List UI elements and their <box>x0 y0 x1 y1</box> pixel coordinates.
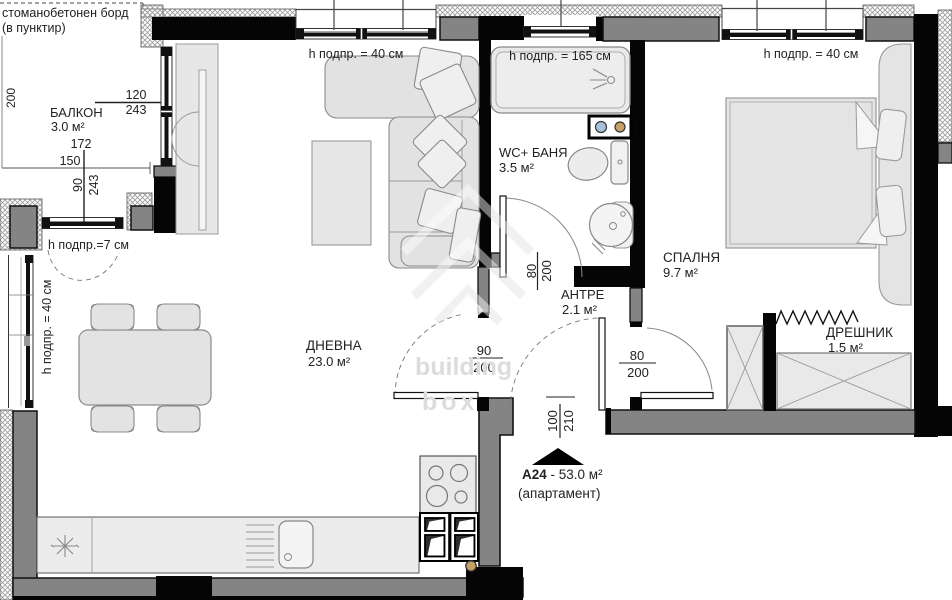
svg-text:1.5 м²: 1.5 м² <box>828 340 864 355</box>
svg-text:(апартамент): (апартамент) <box>518 486 601 501</box>
svg-text:120: 120 <box>126 88 147 102</box>
svg-text:БАЛКОН: БАЛКОН <box>50 105 103 120</box>
svg-text:h подпр.=7 см: h подпр.=7 см <box>48 238 129 252</box>
svg-text:210: 210 <box>561 410 576 432</box>
svg-text:стоманобетонен борд: стоманобетонен борд <box>2 6 129 20</box>
svg-text:243: 243 <box>126 103 147 117</box>
svg-text:2.1 м²: 2.1 м² <box>562 302 598 317</box>
svg-text:ДНЕВНА: ДНЕВНА <box>306 338 362 353</box>
svg-text:23.0 м²: 23.0 м² <box>308 354 351 369</box>
svg-text:80: 80 <box>524 264 539 278</box>
svg-text:172: 172 <box>71 137 92 151</box>
svg-text:h подпр. = 40 см: h подпр. = 40 см <box>764 47 859 61</box>
svg-text:WC+ БАНЯ: WC+ БАНЯ <box>499 145 568 160</box>
svg-text:90: 90 <box>71 178 85 192</box>
svg-text:3.0 м²: 3.0 м² <box>51 120 85 134</box>
svg-text:(в пунктир): (в пунктир) <box>2 21 66 35</box>
svg-text:243: 243 <box>87 175 101 196</box>
svg-text:200: 200 <box>539 260 554 282</box>
svg-text:80: 80 <box>630 348 644 363</box>
svg-text:h подпр. = 40 см: h подпр. = 40 см <box>40 280 54 375</box>
svg-text:h подпр. = 165 см: h подпр. = 165 см <box>509 49 611 63</box>
svg-text:3.5 м²: 3.5 м² <box>499 160 535 175</box>
svg-text:box: box <box>422 388 478 416</box>
svg-text:100: 100 <box>545 410 560 432</box>
svg-text:200: 200 <box>627 365 649 380</box>
svg-text:200: 200 <box>4 88 18 108</box>
svg-text:150: 150 <box>60 154 81 168</box>
svg-text:9.7 м²: 9.7 м² <box>663 265 699 280</box>
svg-text:ДРЕШНИК: ДРЕШНИК <box>826 325 893 340</box>
svg-text:A24 - 53.0 м²: A24 - 53.0 м² <box>522 467 603 482</box>
svg-text:building: building <box>415 353 512 381</box>
svg-text:СПАЛНЯ: СПАЛНЯ <box>663 250 720 265</box>
svg-text:h подпр. = 40 см: h подпр. = 40 см <box>309 47 404 61</box>
svg-text:АНТРЕ: АНТРЕ <box>561 287 605 302</box>
